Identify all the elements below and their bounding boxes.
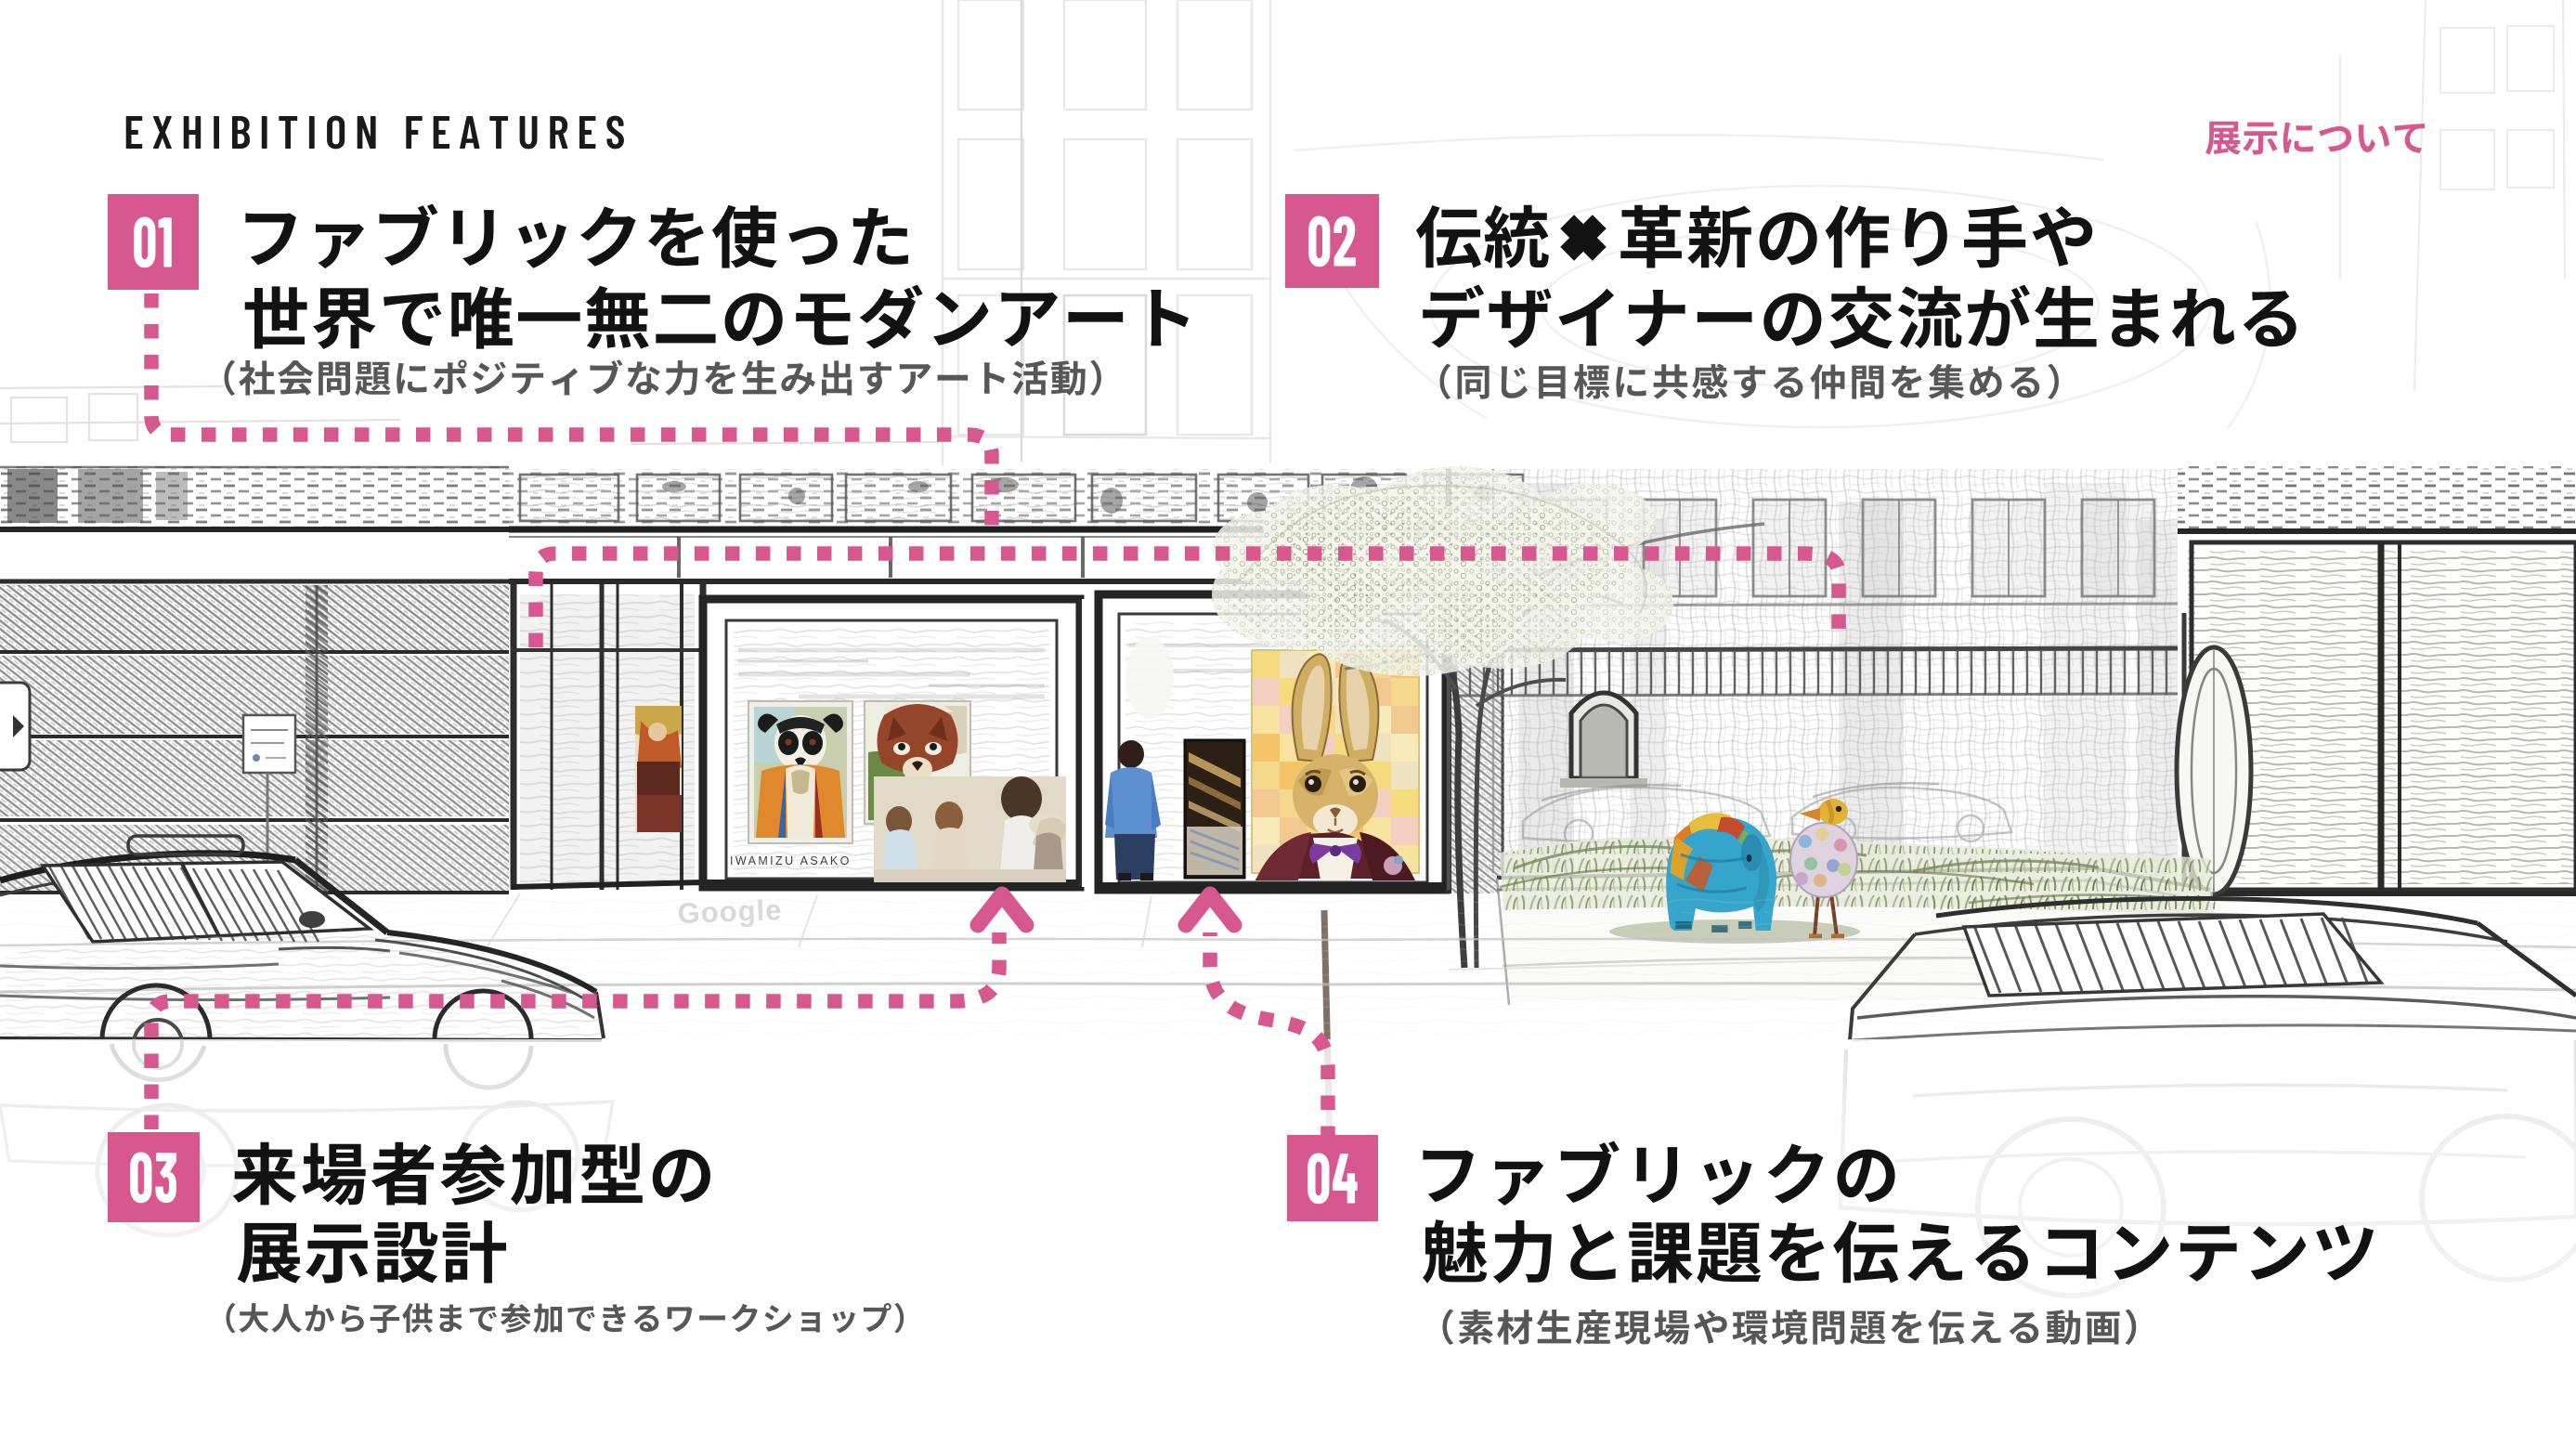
- svg-text:IWAMIZU ASAKO: IWAMIZU ASAKO: [730, 854, 852, 867]
